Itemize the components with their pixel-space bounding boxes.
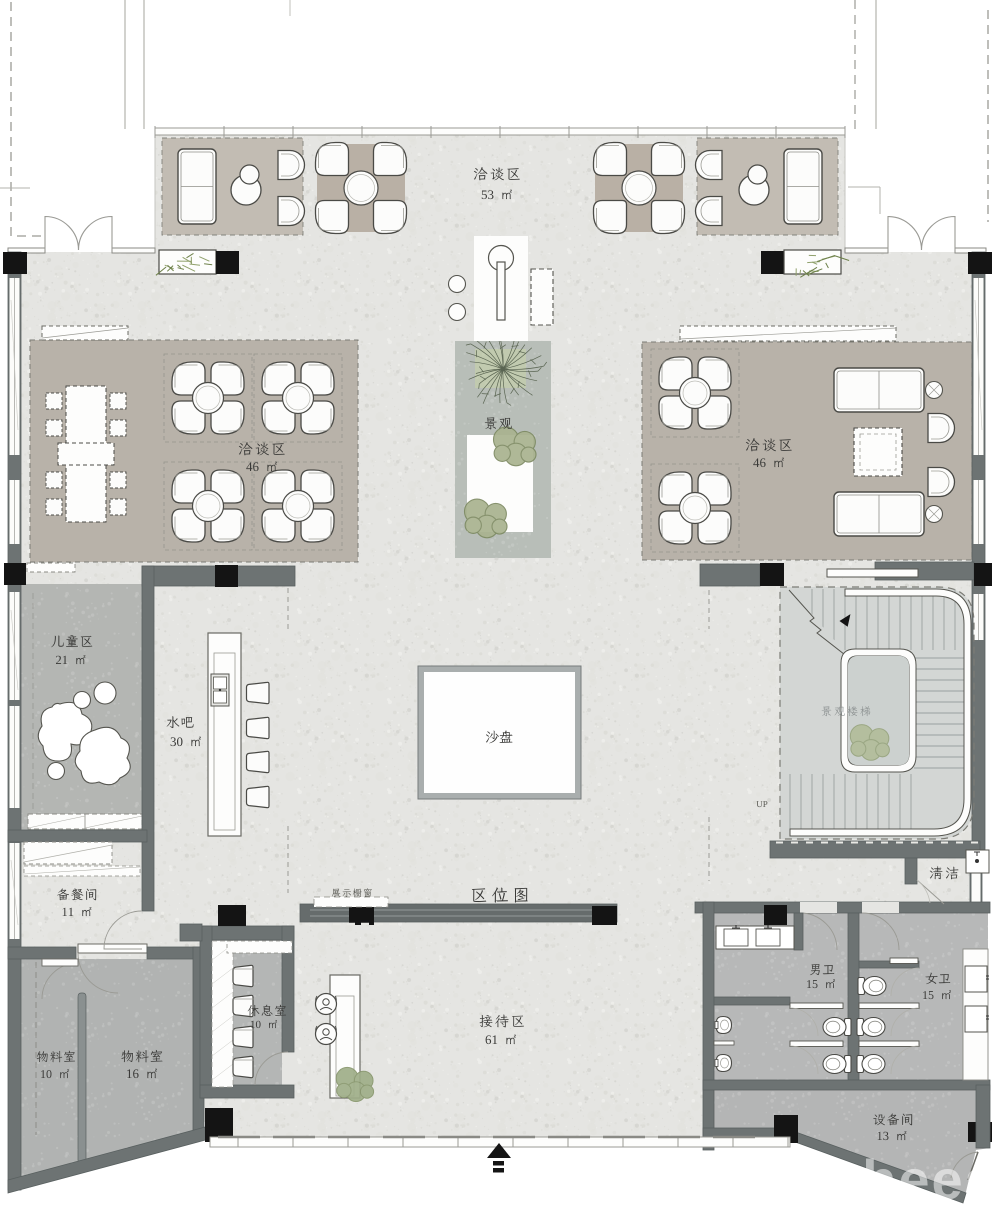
svg-text:cheese: cheese [829,1148,1000,1211]
